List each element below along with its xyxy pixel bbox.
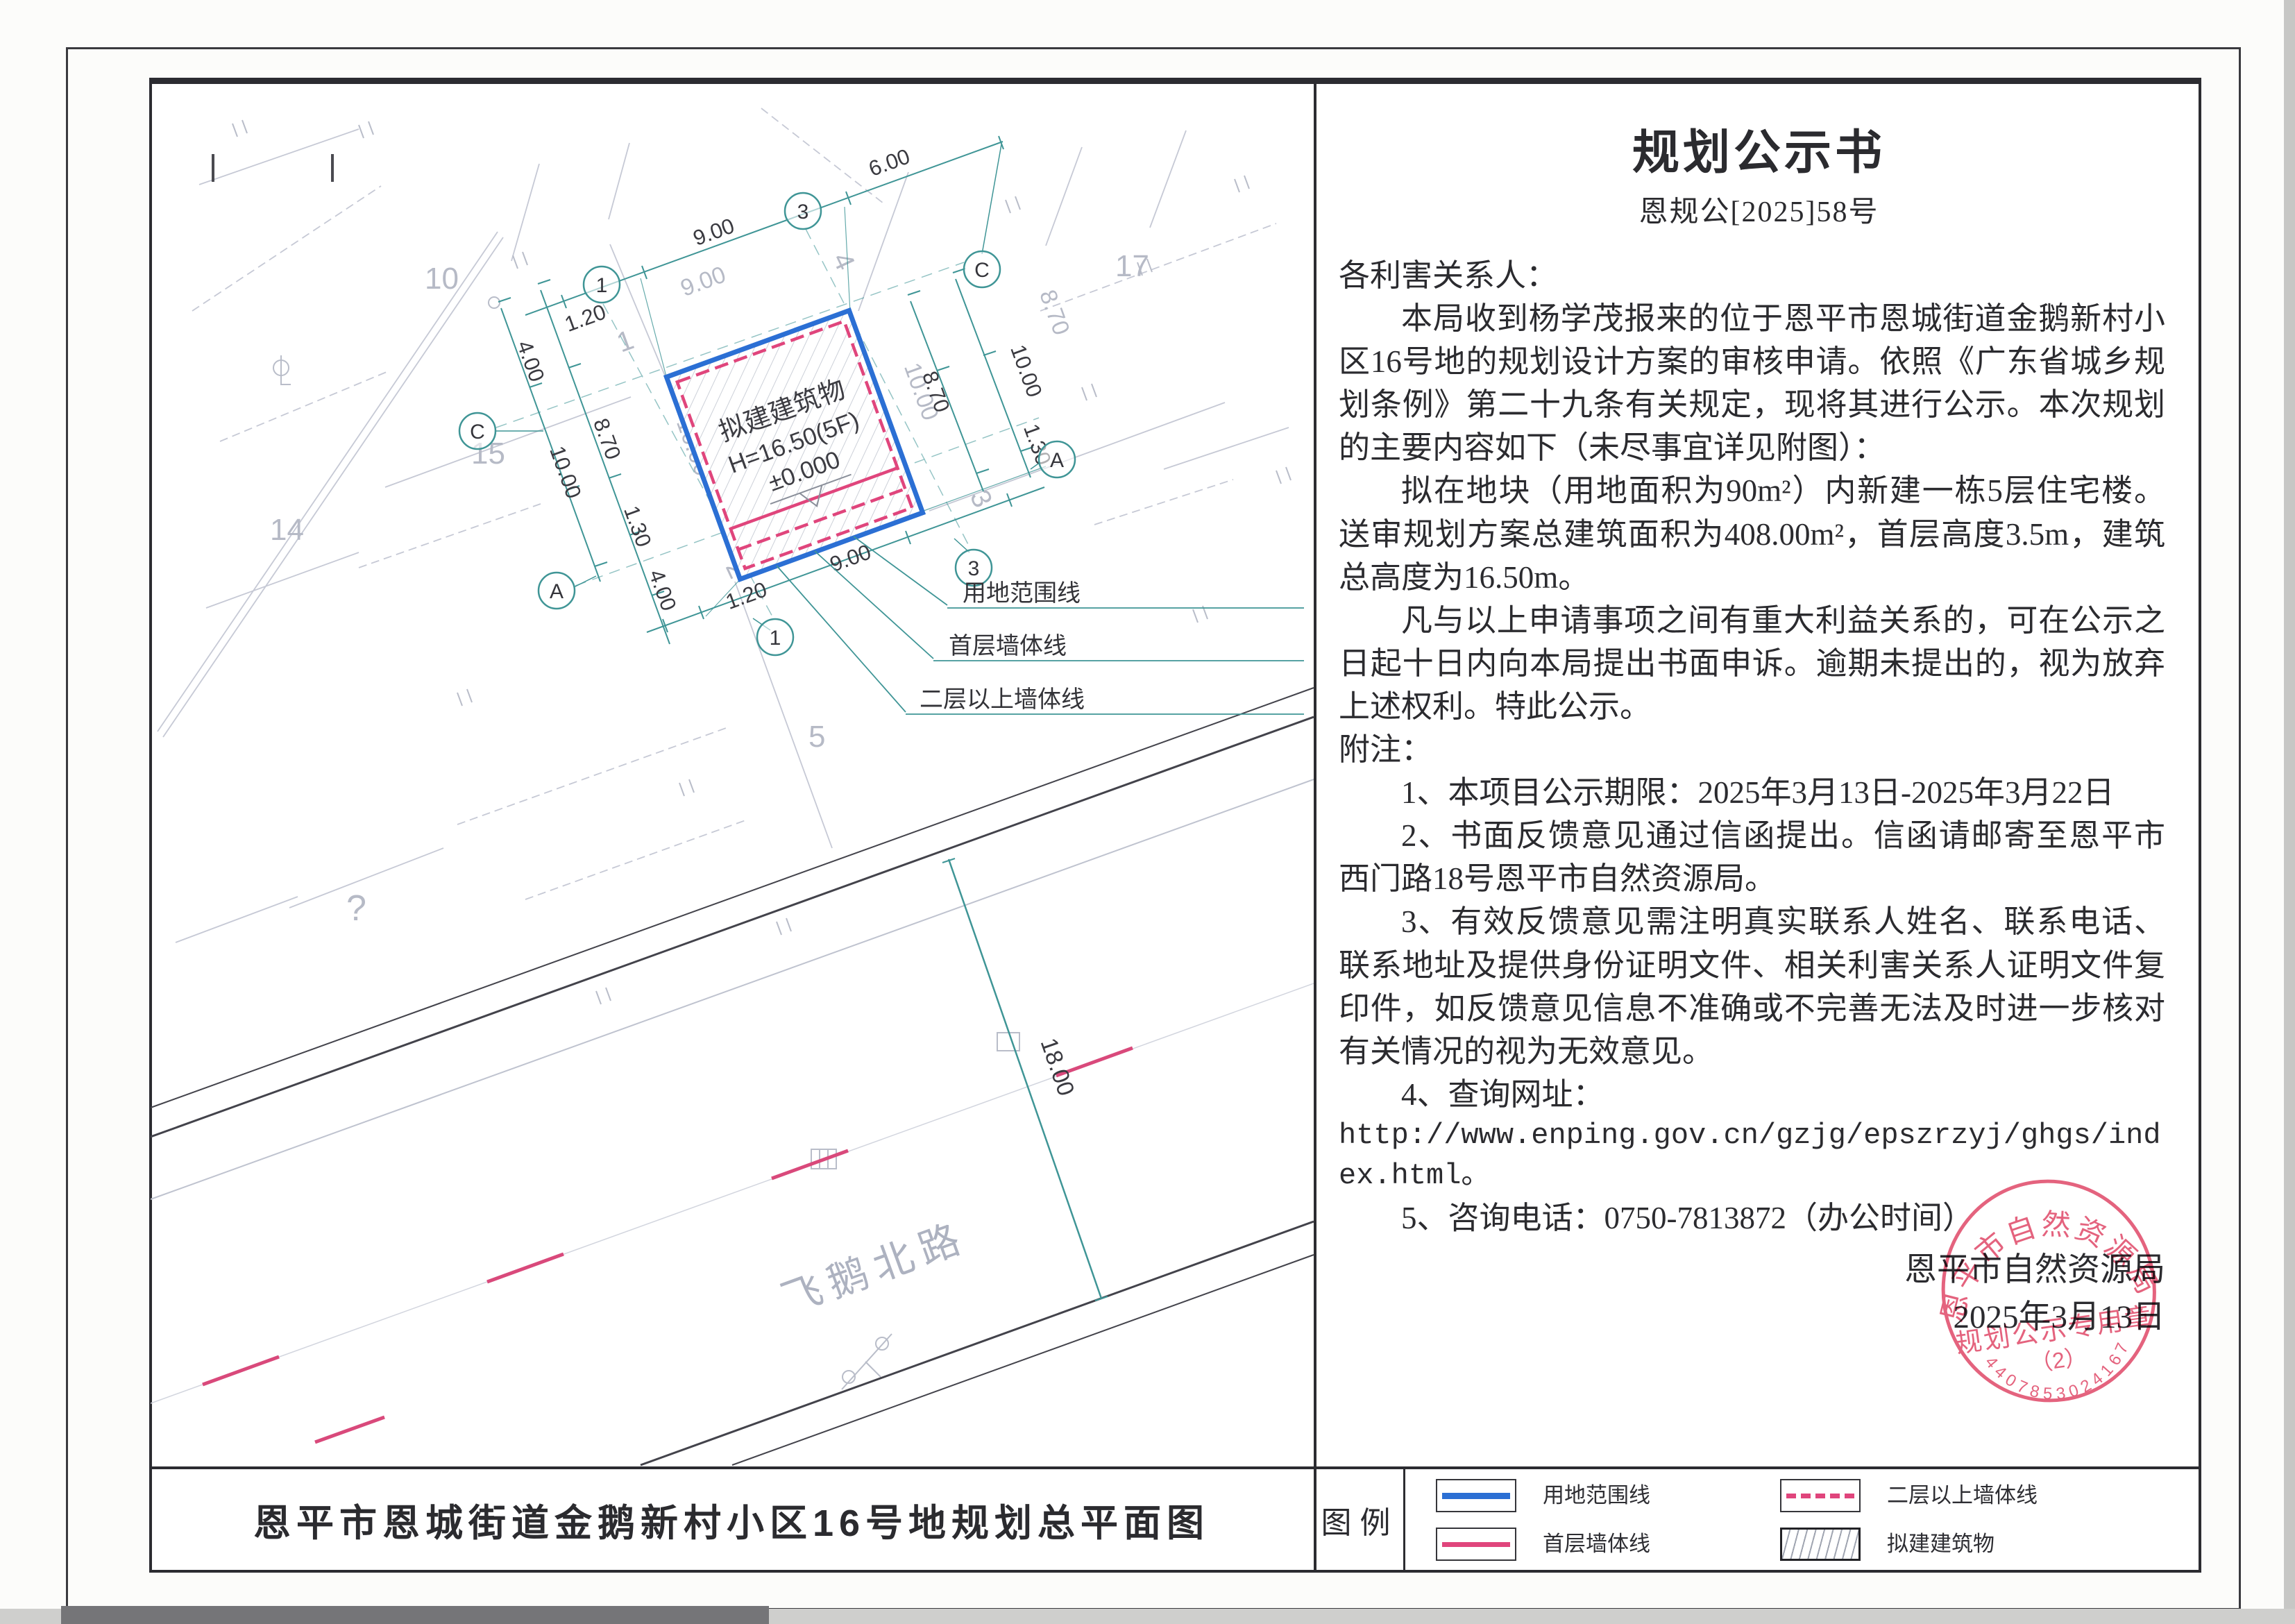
paragraph-3: 凡与以上申请事项之间有重大利益关系的，可在公示之日起十日内向本局提出书面申诉。逾… [1339,599,2165,728]
legend-swatch-building [1780,1528,1861,1561]
dim-120-top: 1.20 [561,299,609,337]
legend-label: 图例 [1321,1498,1399,1542]
pink-line-icon [1442,1542,1510,1547]
scanned-planning-notice: 10 17 15 14 5 ? 1 2 3 4 9.00 10.00 10.00… [0,0,2295,1624]
paragraph-1: 本局收到杨学茂报来的位于恩平市恩城街道金鹅新村小区16号地的规划设计方案的审核申… [1339,297,2165,469]
parcel-q: ? [346,888,366,929]
note-1: 1、本项目公示期限：2025年3月13日-2025年3月22日 [1339,771,2165,814]
road-name: 飞鹅北路 [776,1214,974,1323]
axis-bubble-1-bottom: 1 [757,619,793,655]
scan-edge-bottom-dark [61,1606,769,1624]
axis-bubble-a-right: A [1039,441,1075,477]
cad-dim-870-right: 8.70 [1034,287,1074,339]
blue-line-icon [1442,1493,1510,1499]
parcel-3: 3 [964,485,998,512]
salutation: 各利害关系人： [1339,254,2165,297]
building-footprint: 拟建建筑物 H=16.50(5F) ±0.000 [666,310,922,579]
legend-label-cell: 图例 [1316,1469,1403,1570]
legend-swatch-upper-wall [1780,1479,1861,1512]
svg-text:C: C [974,259,990,282]
legend-swatch-ground-wall [1436,1528,1516,1561]
road [151,688,1314,1465]
legend-swatch-boundary [1436,1479,1516,1512]
scan-edge-right [2284,0,2295,1624]
panel-divider [1314,78,1316,1573]
axis-bubble-3-top: 3 [785,193,821,229]
legend-item-ground-wall: 首层墙体线 [1543,1528,1650,1561]
parcel-14: 14 [270,513,304,547]
axis-bubble-a-left: A [539,573,575,609]
axis-bubble-1-top: 1 [584,267,620,303]
notice-title: 规划公示书 [1316,114,2201,183]
cad-dim-900-top: 9.00 [677,261,729,301]
callout-upper-wall: 二层以上墙体线 [920,686,1085,713]
axis-bubble-c-right: C [964,251,1000,287]
svg-text:1: 1 [770,627,781,650]
survey-symbols [273,297,1019,1389]
road-width-dimension [942,858,1108,1301]
parcel-5: 5 [808,720,825,754]
dim-400-left: 4.00 [512,337,550,385]
note-4: 4、查询网址： [1339,1073,2165,1116]
frame-ticks [213,154,332,182]
callout-ground-wall: 首层墙体线 [949,633,1067,659]
site-plan: 10 17 15 14 5 ? 1 2 3 4 9.00 10.00 10.00… [151,81,1314,1466]
svg-text:3: 3 [797,201,809,223]
svg-text:1: 1 [596,274,608,297]
official-stamp: 恩平市自然资源局 规划公示专用章 （2） 4407853024167 [1915,1156,2182,1423]
plan-title: 恩平市恩城街道金鹅新村小区16号地规划总平面图 [253,1492,1210,1547]
axis-bubble-c-left: C [459,413,496,449]
parcel-4: 4 [827,248,861,275]
note-3: 3、有效反馈意见需注明真实联系人姓名、联系电话、联系地址及提供身份证明文件、相关… [1339,900,2165,1072]
svg-text:A: A [550,580,564,603]
plan-title-cell: 恩平市恩城街道金鹅新村小区16号地规划总平面图 [149,1469,1314,1570]
dim-1000-left: 10.00 [545,443,586,502]
dim-120-bottom: 1.20 [722,577,770,614]
notes-label: 附注： [1339,728,2165,771]
legend-item-building: 拟建建筑物 [1887,1528,1995,1561]
svg-text:C: C [470,421,485,443]
svg-text:3: 3 [968,557,980,580]
note-2: 2、书面反馈意见通过信函提出。信函请邮寄至恩平市西门路18号恩平市自然资源局。 [1339,814,2165,900]
parcel-17: 17 [1115,249,1149,283]
dim-1000-right: 10.00 [1006,341,1047,400]
paragraph-2: 拟在地块（用地面积为90m²）内新建一栋5层住宅楼。送审规划方案总建筑面积为40… [1339,469,2165,598]
parcel-10: 10 [425,262,459,296]
legend-item-boundary: 用地范围线 [1543,1479,1650,1512]
legend-item-upper-wall: 二层以上墙体线 [1887,1479,2038,1512]
svg-text:A: A [1050,449,1064,472]
road-centerline-dashes [203,1048,1133,1442]
doc-number: 恩规公[2025]58号 [1316,188,2201,230]
pink-dash-icon [1786,1494,1854,1498]
callout-boundary: 用地范围线 [963,580,1081,607]
notice-body: 各利害关系人： 本局收到杨学茂报来的位于恩平市恩城街道金鹅新村小区16号地的规划… [1316,254,2201,1240]
dim-900-top: 9.00 [690,213,738,251]
dim-130-left: 1.30 [619,502,657,550]
legend: 用地范围线 首层墙体线 二层以上墙体线 拟建建筑物 [1405,1469,2201,1570]
road-width-label: 18.00 [1035,1035,1080,1099]
dim-600-top: 6.00 [865,144,913,181]
stamp-sub-text: （2） [2029,1344,2088,1376]
